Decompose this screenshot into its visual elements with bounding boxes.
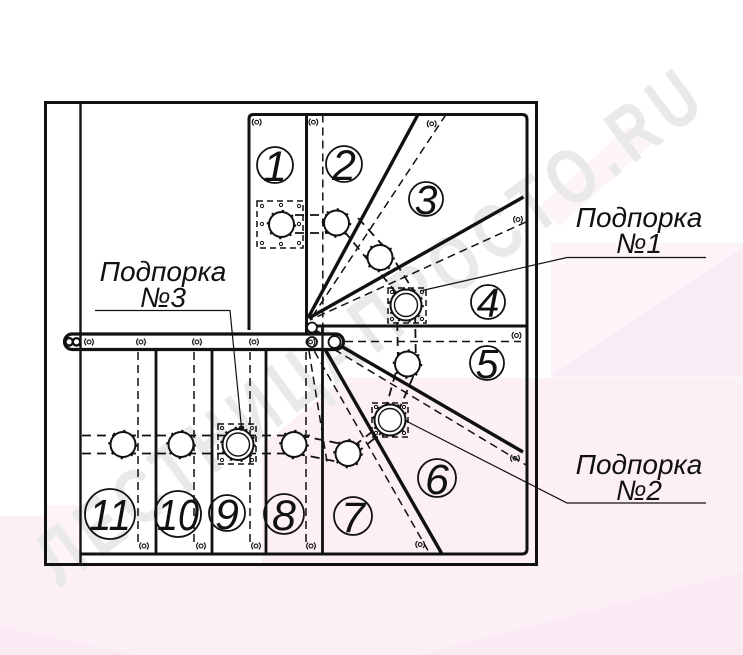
svg-text:№2: №2 (616, 475, 662, 506)
svg-text:7: 7 (341, 494, 367, 542)
svg-text:9: 9 (215, 491, 239, 539)
svg-text:№3: №3 (140, 282, 186, 313)
svg-text:6: 6 (425, 456, 449, 504)
svg-text:3: 3 (415, 177, 438, 223)
svg-text:№1: №1 (616, 228, 662, 259)
svg-text:10: 10 (157, 491, 199, 540)
svg-text:2: 2 (331, 142, 356, 190)
svg-text:5: 5 (476, 341, 499, 387)
svg-text:11: 11 (89, 491, 131, 540)
svg-text:1: 1 (263, 143, 287, 191)
svg-text:4: 4 (477, 280, 500, 326)
svg-text:8: 8 (272, 492, 296, 540)
